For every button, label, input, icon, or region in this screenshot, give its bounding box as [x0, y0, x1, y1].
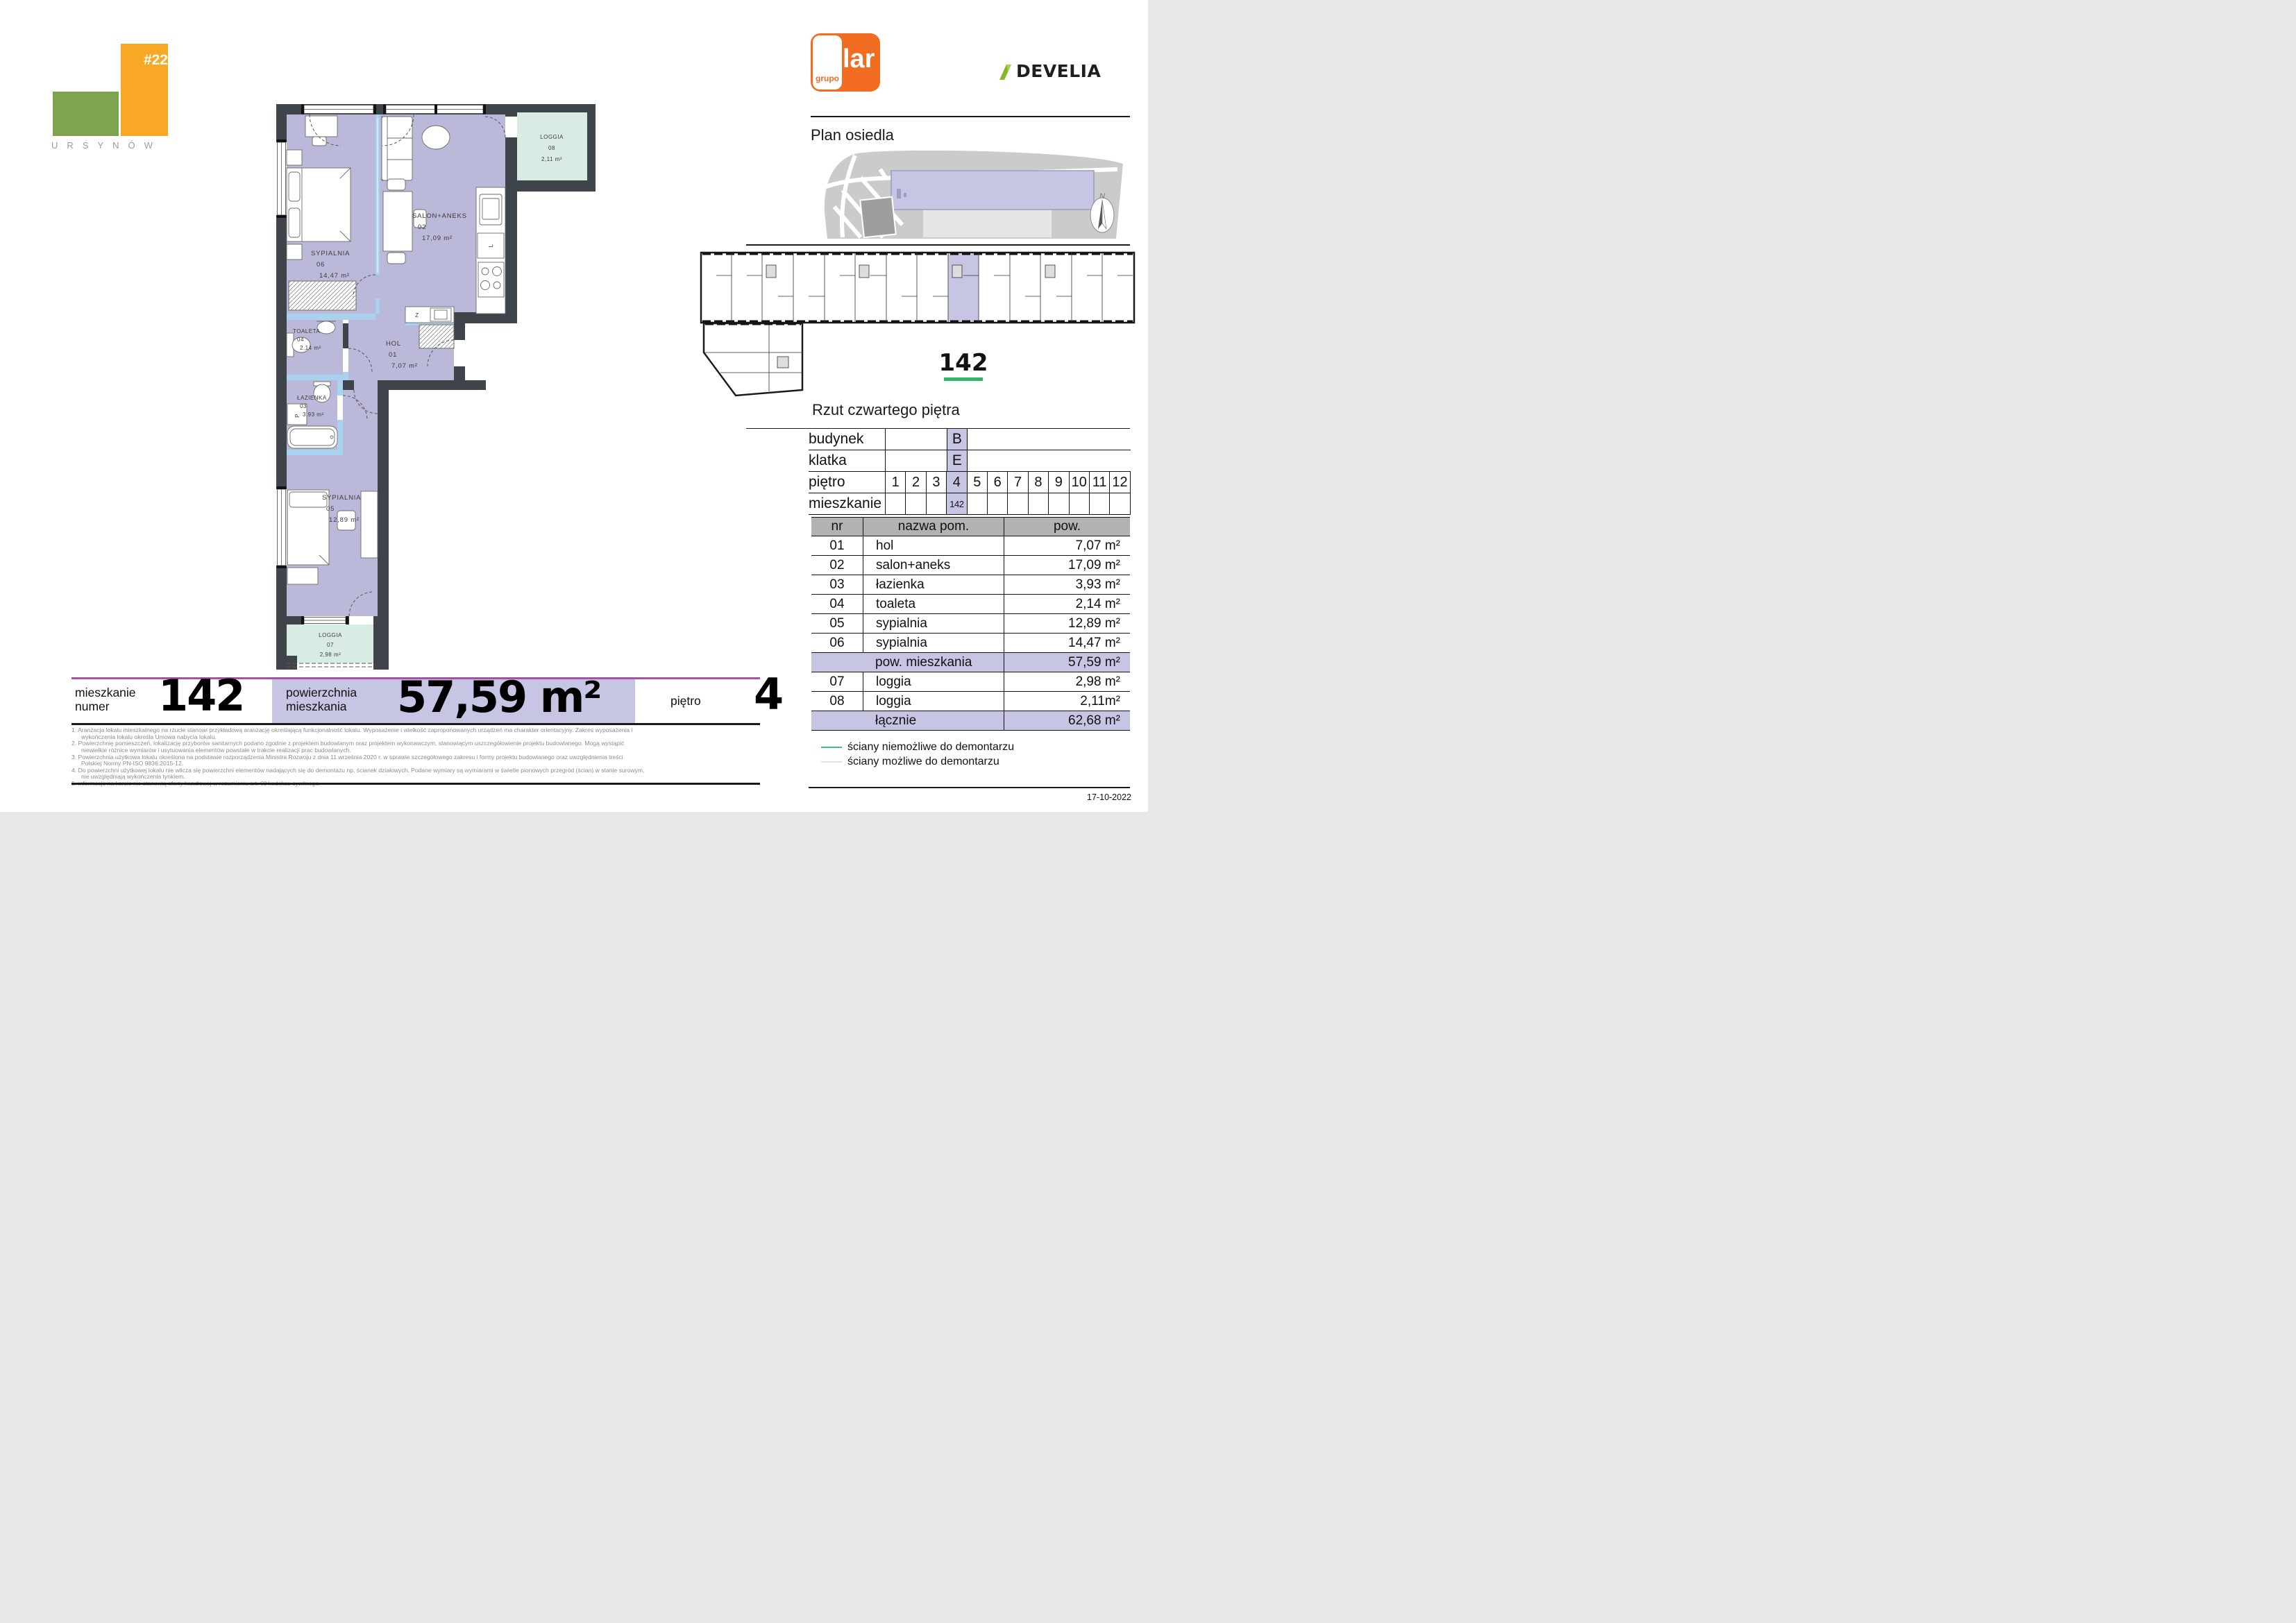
room-row: 01 hol 7,07 m² — [811, 536, 1130, 556]
row-pietro: piętro 123456789101112 — [809, 472, 1131, 493]
room-no: 04 — [811, 597, 863, 612]
budynek-label: budynek — [809, 431, 885, 448]
syp05-area: 12,89 m² — [329, 516, 360, 524]
pietro-label: piętro — [809, 474, 885, 491]
footnotes: 1. Aranżacja lokalu mieszkalnego na rzuc… — [71, 727, 760, 788]
unit-cell — [1070, 493, 1090, 514]
loggia07-no: 07 — [327, 642, 334, 648]
lazienka-no: 03 — [300, 403, 307, 409]
loggia08-no: 08 — [548, 145, 555, 151]
lazienka-area: 3,93 m² — [303, 411, 324, 418]
room-row: 03 łazienka 3,93 m² — [811, 575, 1130, 595]
rooms-rows: 01 hol 7,07 m² 02 salon+aneks 17,09 m² 0… — [811, 536, 1130, 653]
salon-area: 17,09 m² — [422, 235, 453, 242]
room-area: 12,89 m² — [1004, 616, 1130, 631]
project-number: #22 — [144, 52, 168, 69]
furniture-hol — [419, 325, 454, 348]
legend-row: ściany niemożliwe do demontarzu — [821, 740, 1014, 754]
mieszkanie-label: mieszkanie — [809, 495, 885, 512]
room-area: 2,14 m² — [1004, 597, 1130, 612]
syp06-area: 14,47 m² — [319, 272, 350, 280]
loggia07-area: 2,98 m² — [320, 652, 341, 658]
loggia08-name: LOGGIA — [540, 134, 564, 140]
logo-orange-block: #22 — [121, 44, 168, 136]
footnotes-bottom-line — [71, 783, 760, 785]
floor-cell: 11 — [1090, 472, 1110, 493]
syp05-name: SYPIALNIA — [322, 494, 361, 502]
room-name: loggia — [863, 672, 1004, 691]
floor-cell: 6 — [988, 472, 1008, 493]
room-no: 02 — [811, 558, 863, 573]
grupo-lar-small-text: grupo — [816, 74, 839, 83]
summary-apartment-label: pow. mieszkania — [811, 653, 1004, 672]
develia-logo: DEVELIA — [998, 61, 1101, 81]
room-no: 07 — [811, 674, 863, 690]
header-nr: nr — [811, 519, 863, 534]
room-name: sypialnia — [863, 634, 1004, 652]
room-name: sypialnia — [863, 614, 1004, 633]
klatka-label: klatka — [809, 452, 885, 469]
budynek-cells: B — [885, 429, 1131, 450]
room-area: 2,11m² — [1004, 694, 1130, 709]
hol-no: 01 — [389, 351, 397, 359]
area-big: 57,59 m² — [397, 676, 600, 719]
toaleta-area: 2,14 m² — [300, 345, 321, 351]
dining-table — [383, 192, 412, 251]
overview-strip — [701, 253, 1134, 323]
site-building-detail — [897, 189, 901, 198]
label-powierzchnia: powierzchnia — [286, 686, 357, 699]
grupo-lar-big-text: lar — [843, 44, 875, 74]
unit-cell — [1008, 493, 1028, 514]
footnotes-top-line — [71, 723, 760, 725]
room-row: 04 toaleta 2,14 m² — [811, 595, 1130, 614]
walls-legend: ściany niemożliwe do demontarzu ściany m… — [821, 740, 1014, 769]
overview-unit-underline — [944, 377, 983, 381]
divider-under-map — [746, 244, 1130, 246]
site-plan-title: Plan osiedla — [811, 126, 894, 144]
floor-cell: 7 — [1008, 472, 1028, 493]
hol-name: HOL — [386, 340, 401, 348]
fridge-letter: L — [488, 244, 494, 247]
coffee-table — [422, 126, 450, 149]
site-neighbor-building — [860, 197, 895, 238]
unit-cell — [1110, 493, 1130, 514]
project-name: URSYNÓW — [51, 140, 183, 151]
location-table: budynek B klatka E piętro 12345678910111… — [809, 429, 1131, 515]
unit-cell — [927, 493, 947, 514]
room-no: 03 — [811, 577, 863, 593]
room-row: 06 sypialnia 14,47 m² — [811, 634, 1130, 653]
label-mieszkania: mieszkania — [286, 699, 357, 713]
unit-cell — [886, 493, 906, 514]
room-no: 06 — [811, 636, 863, 651]
unit-cell — [968, 493, 988, 514]
room-row: 07 loggia 2,98 m² — [811, 672, 1130, 692]
hol-area: 7,07 m² — [391, 362, 418, 370]
rooms-table: nr nazwa pom. pow. 01 hol 7,07 m² 02 sal… — [811, 517, 1130, 731]
room-area: 2,98 m² — [1004, 674, 1130, 690]
room-name: toaleta — [863, 595, 1004, 613]
unit-cell — [988, 493, 1008, 514]
room-name: salon+aneks — [863, 556, 1004, 575]
toaleta-name: TOALETA — [293, 328, 320, 334]
kitchen-cabinet-z — [405, 307, 454, 323]
klatka-value: E — [947, 450, 967, 471]
wardrobe-hol — [419, 325, 454, 348]
stove — [478, 262, 504, 297]
header-pow: pow. — [1004, 519, 1130, 534]
salon-name: SALON+ANEKS — [412, 212, 467, 220]
label-numer: numer — [75, 699, 136, 713]
loggia07-name: LOGGIA — [319, 632, 342, 638]
room-name: hol — [863, 536, 1004, 555]
legend-swatch — [821, 747, 842, 748]
floor-cell: 4 — [947, 472, 967, 493]
room-no: 08 — [811, 694, 863, 709]
summary-row-apartment: pow. mieszkania 57,59 m² — [811, 653, 1130, 672]
floor-overview: 142 — [700, 251, 1136, 398]
row-mieszkanie: mieszkanie 142 — [809, 493, 1131, 515]
salon-no: 02 — [418, 223, 426, 231]
summary-total-label: łącznie — [811, 711, 1004, 730]
syp06-no: 06 — [316, 261, 325, 269]
unit-cell — [1090, 493, 1110, 514]
summary-total-area: 62,68 m² — [1004, 713, 1130, 729]
floor-cell: 2 — [906, 472, 926, 493]
legend-label: ściany niemożliwe do demontarzu — [847, 741, 1014, 754]
label-mieszkanie: mieszkanie — [75, 686, 136, 699]
loggia08-area: 2,11 m² — [541, 156, 562, 162]
room-area: 14,47 m² — [1004, 636, 1130, 651]
bottom-right-line — [809, 787, 1130, 788]
develia-text: DEVELIA — [1016, 61, 1101, 81]
room-row: 02 salon+aneks 17,09 m² — [811, 556, 1130, 575]
desk — [361, 491, 378, 558]
syp06-name: SYPIALNIA — [311, 250, 350, 257]
room-area: 3,93 m² — [1004, 577, 1130, 593]
apartment-floor-plan: L Z — [276, 104, 596, 670]
site-highlighted-building — [891, 171, 1094, 210]
bathtub — [287, 426, 337, 448]
overview-unit-number: 142 — [939, 349, 988, 377]
floor-label: piętro — [670, 694, 701, 708]
legend-row: ściany możliwe do demontarzu — [821, 754, 1014, 769]
floor-big: 4 — [754, 673, 782, 716]
grupo-lar-logo: grupo lar — [811, 33, 880, 92]
room-no: 01 — [811, 538, 863, 554]
unit-cell — [1029, 493, 1049, 514]
door-threshold — [354, 380, 378, 390]
floor-cell: 9 — [1049, 472, 1069, 493]
develia-flag-icon — [998, 63, 1012, 80]
room-row: 05 sypialnia 12,89 m² — [811, 614, 1130, 634]
unit-cell: 142 — [947, 493, 967, 514]
summary-row-total: łącznie 62,68 m² — [811, 711, 1130, 731]
site-building-detail — [904, 193, 906, 197]
apartment-number-big: 142 — [158, 674, 244, 717]
floor-cell: 5 — [968, 472, 988, 493]
room-area: 7,07 m² — [1004, 538, 1130, 554]
apartment-number-label: mieszkanie numer — [75, 686, 136, 713]
lazienka-name: ŁAZIENKA — [297, 395, 327, 401]
overview-highlighted-unit — [948, 254, 979, 321]
floor-cell: 1 — [886, 472, 906, 493]
toaleta-no: 04 — [297, 337, 304, 343]
z-letter: Z — [415, 312, 419, 318]
room-name: loggia — [863, 692, 1004, 711]
area-label: powierzchnia mieszkania — [286, 686, 357, 713]
apartment-card-page: #22 URSYNÓW grupo lar DEVELIA Plan osied… — [0, 0, 1148, 812]
room-name: łazienka — [863, 575, 1004, 594]
summary-apartment-area: 57,59 m² — [1004, 655, 1130, 670]
budynek-value: B — [947, 429, 967, 450]
unit-cell — [906, 493, 926, 514]
compass-north-label: N — [1099, 192, 1105, 201]
loggia-rows: 07 loggia 2,98 m² 08 loggia 2,11m² — [811, 672, 1130, 711]
syp05-no: 05 — [326, 505, 335, 513]
header-name: nazwa pom. — [863, 518, 1004, 536]
floor-cell: 10 — [1070, 472, 1090, 493]
unit-cells: 142 — [885, 493, 1131, 514]
legend-swatch — [821, 761, 842, 763]
site-plan-map: N — [819, 148, 1135, 243]
floor-cells: 123456789101112 — [885, 472, 1131, 493]
floor-cell: 8 — [1029, 472, 1049, 493]
room-area: 17,09 m² — [1004, 558, 1130, 573]
washer-letter: P — [294, 414, 301, 418]
date: 17-10-2022 — [993, 792, 1131, 802]
unit-cell — [1049, 493, 1069, 514]
floor-cell: 3 — [927, 472, 947, 493]
klatka-cells: E — [885, 450, 1131, 471]
row-klatka: klatka E — [809, 450, 1131, 472]
legend-label: ściany możliwe do demontarzu — [847, 756, 999, 768]
wardrobe-syp06 — [289, 281, 356, 310]
divider-under-logos — [811, 116, 1130, 117]
rooms-table-header: nr nazwa pom. pow. — [811, 517, 1130, 536]
floor-caption: Rzut czwartego piętra — [812, 401, 960, 419]
room-no: 05 — [811, 616, 863, 631]
room-row: 08 loggia 2,11m² — [811, 692, 1130, 711]
row-budynek: budynek B — [809, 429, 1131, 450]
floor-cell: 12 — [1110, 472, 1130, 493]
